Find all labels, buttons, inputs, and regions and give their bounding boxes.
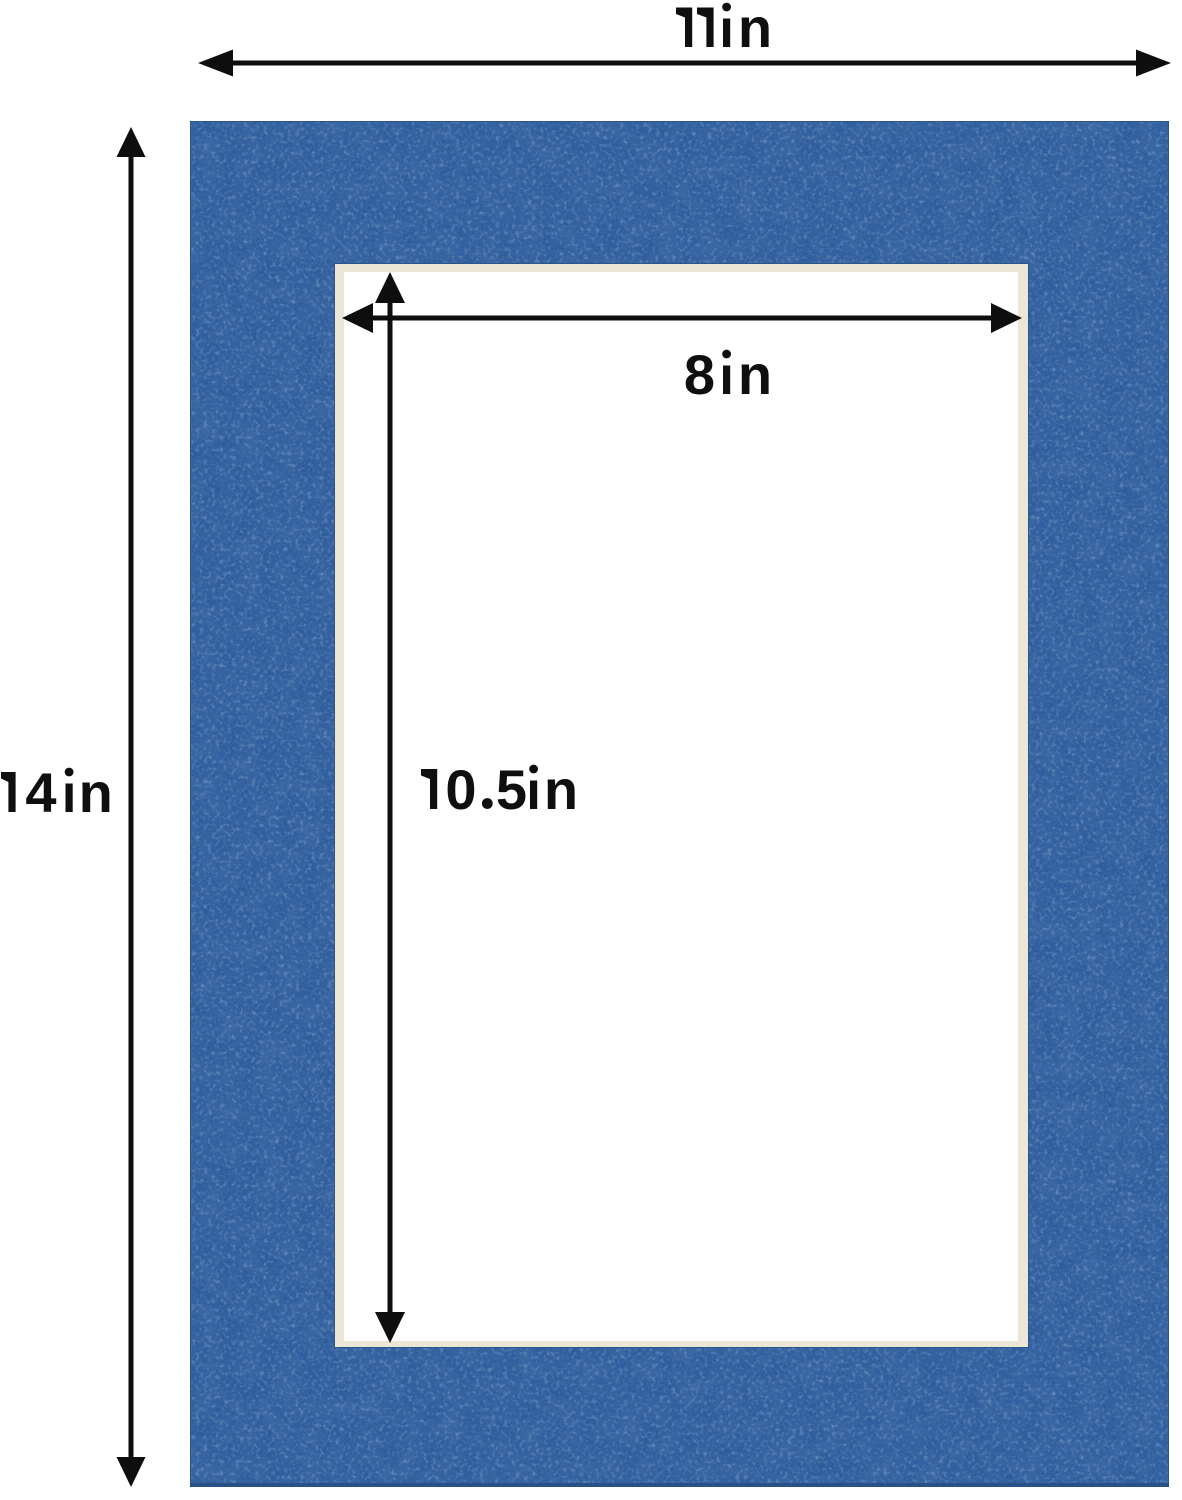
svg-text:n: n — [738, 0, 772, 59]
svg-text:n: n — [544, 758, 578, 821]
svg-text:4: 4 — [25, 761, 56, 824]
svg-text:0: 0 — [445, 758, 476, 821]
svg-text:5: 5 — [496, 758, 527, 821]
svg-text:n: n — [738, 343, 772, 406]
svg-text:n: n — [79, 761, 113, 824]
svg-text:8: 8 — [684, 343, 715, 406]
